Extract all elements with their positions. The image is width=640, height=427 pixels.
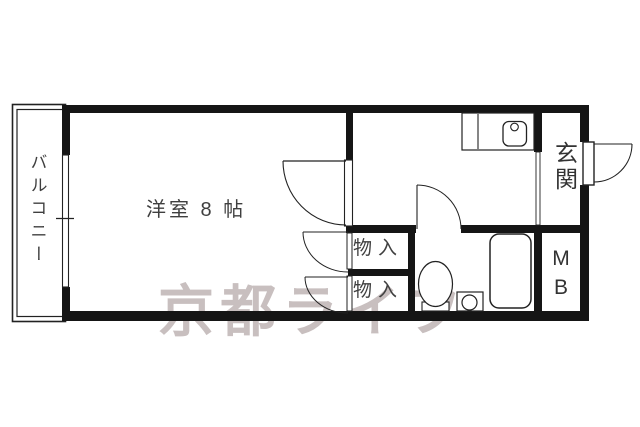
wall-right-upper: [580, 105, 589, 142]
bathroom-fixtures: [419, 234, 532, 311]
wash-pan-drain-icon: [462, 295, 477, 310]
balcony-window: [56, 155, 74, 287]
wall-bath-meterbox: [534, 225, 542, 311]
meter-box-label-b: B: [554, 276, 568, 299]
western-room-label: 洋室 8 帖: [146, 199, 246, 222]
storage-bottom-label: 物入: [349, 280, 407, 302]
floorplan-page: 京都ライフ: [0, 0, 640, 427]
entrance-step-line: [536, 152, 540, 225]
kitchen-counter: [462, 113, 534, 150]
wall-closet-divider: [348, 269, 410, 276]
closet-doors: [303, 232, 352, 313]
wall-bottom: [62, 311, 589, 321]
meter-box-label: MB: [542, 244, 580, 302]
wall-left-lower: [62, 287, 70, 321]
wall-kitchen-bath-right: [461, 225, 589, 233]
bath-door: [417, 185, 461, 229]
wall-left-upper: [62, 107, 70, 155]
balcony-label: バルコニー: [27, 153, 47, 268]
wall-kitchen-bath-left: [346, 225, 416, 233]
meter-box-label-m: M: [552, 247, 570, 270]
floorplan-drawing: [0, 0, 640, 427]
toilet-bowl-icon: [419, 262, 453, 307]
storage-top-label: 物入: [349, 238, 407, 260]
entrance-door: [583, 142, 632, 185]
wall-room-kitchen: [346, 113, 353, 160]
wall-top: [62, 105, 589, 113]
room-door: [283, 160, 353, 226]
wall-right-lower: [580, 185, 589, 321]
faucet-icon: [511, 123, 519, 131]
entrance-label: 玄関: [551, 141, 577, 193]
bathtub-icon: [490, 234, 531, 308]
wall-kitchen-entrance: [534, 113, 542, 152]
